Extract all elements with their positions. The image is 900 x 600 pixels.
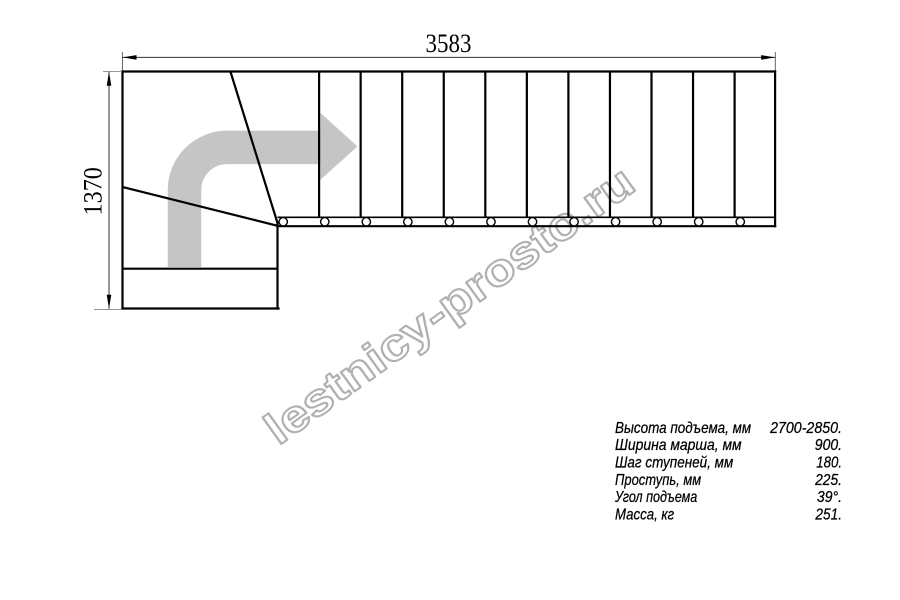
svg-text:180.: 180. bbox=[816, 455, 842, 472]
svg-text:Угол подъема: Угол подъема bbox=[614, 489, 697, 506]
svg-text:Проступь, мм: Проступь, мм bbox=[615, 472, 701, 489]
svg-text:1370: 1370 bbox=[79, 167, 108, 215]
svg-text:251.: 251. bbox=[815, 507, 842, 524]
svg-text:39°.: 39°. bbox=[817, 489, 842, 506]
svg-text:Масса, кг: Масса, кг bbox=[615, 507, 674, 524]
svg-text:2700-2850.: 2700-2850. bbox=[769, 420, 842, 437]
svg-text:Шаг ступеней, мм: Шаг ступеней, мм bbox=[615, 455, 733, 472]
svg-text:900.: 900. bbox=[815, 437, 842, 454]
svg-text:Высота подъема, мм: Высота подъема, мм bbox=[615, 420, 751, 437]
svg-text:Ширина марша, мм: Ширина марша, мм bbox=[615, 437, 742, 454]
svg-text:lestnicy-prosto.ru: lestnicy-prosto.ru bbox=[255, 156, 643, 454]
svg-text:3583: 3583 bbox=[426, 29, 472, 58]
svg-text:225.: 225. bbox=[814, 472, 842, 489]
